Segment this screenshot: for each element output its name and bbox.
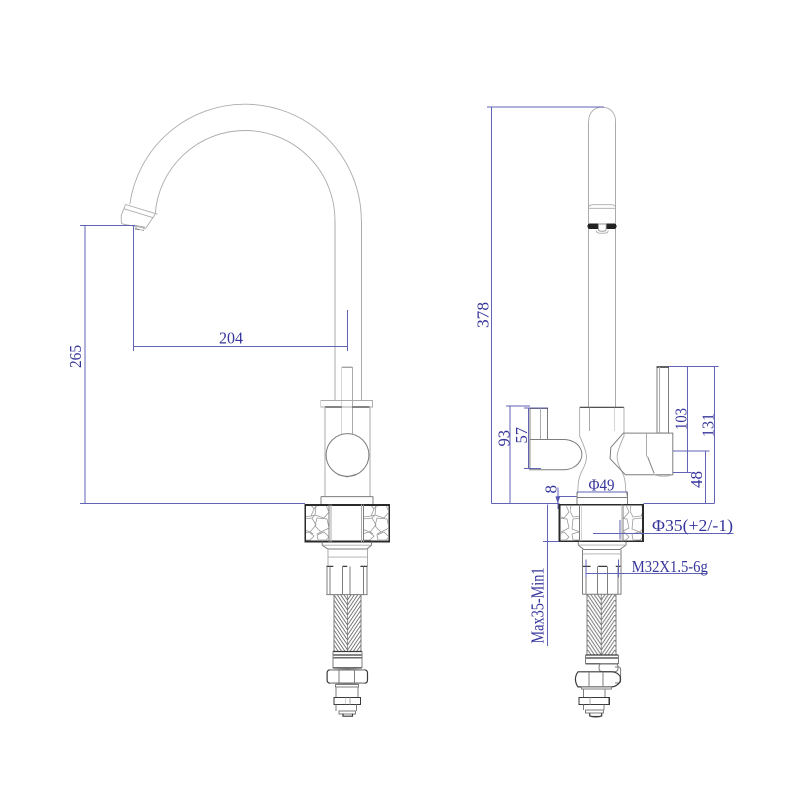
- svg-text:M32X1.5-6g: M32X1.5-6g: [632, 557, 708, 576]
- svg-text:93: 93: [495, 430, 514, 447]
- svg-text:Max35-Min1: Max35-Min1: [528, 568, 548, 644]
- svg-text:Φ35(+2/-1): Φ35(+2/-1): [652, 516, 733, 535]
- svg-text:265: 265: [66, 345, 85, 368]
- svg-text:Φ49: Φ49: [589, 476, 615, 495]
- svg-text:48: 48: [687, 471, 706, 488]
- svg-text:131: 131: [699, 413, 718, 437]
- svg-text:103: 103: [672, 408, 691, 430]
- svg-text:378: 378: [474, 302, 493, 328]
- svg-text:8: 8: [542, 485, 561, 494]
- svg-text:204: 204: [219, 329, 243, 348]
- svg-text:57: 57: [512, 427, 531, 444]
